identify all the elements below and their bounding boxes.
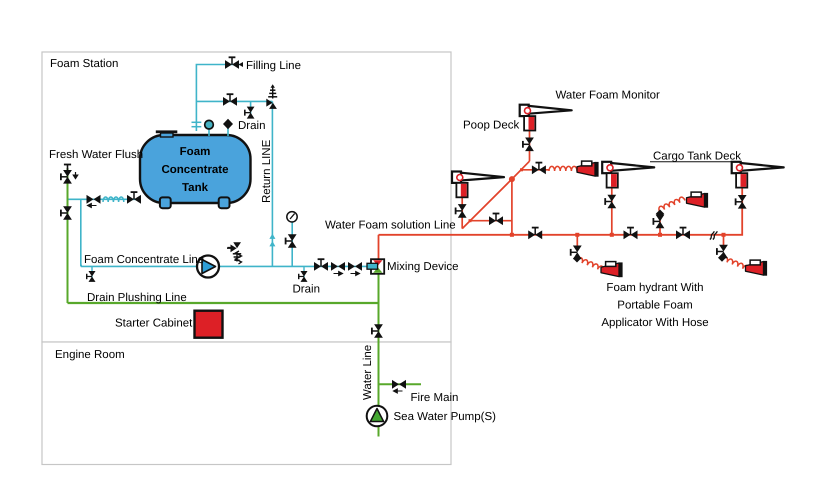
svg-text:Poop Deck: Poop Deck xyxy=(463,120,520,132)
svg-text:Cargo Tank Deck: Cargo Tank Deck xyxy=(653,151,741,163)
svg-text:Drain: Drain xyxy=(293,284,320,296)
svg-text:Water Foam Monitor: Water Foam Monitor xyxy=(556,90,661,102)
svg-text:Foam: Foam xyxy=(180,146,211,158)
svg-text:Foam Concentrate Line: Foam Concentrate Line xyxy=(84,254,204,266)
svg-text:Tank: Tank xyxy=(182,182,209,194)
svg-text:Sea Water Pump(S): Sea Water Pump(S) xyxy=(394,411,497,423)
svg-text:Applicator With Hose: Applicator With Hose xyxy=(601,317,708,329)
svg-text:Drain Plushing Line: Drain Plushing Line xyxy=(87,292,187,304)
svg-text:Portable Foam: Portable Foam xyxy=(617,300,692,312)
svg-text:Fresh Water Flush: Fresh Water Flush xyxy=(49,149,143,161)
svg-text:Concentrate: Concentrate xyxy=(161,164,228,176)
svg-text:Water Line: Water Line xyxy=(362,345,374,400)
svg-text:Drain: Drain xyxy=(238,120,265,132)
svg-text:Fire Main: Fire Main xyxy=(411,392,459,404)
svg-text:Water Foam solution Line: Water Foam solution Line xyxy=(325,220,456,232)
svg-text:Mixing Device: Mixing Device xyxy=(387,261,459,273)
svg-text:Starter Cabinet: Starter Cabinet xyxy=(115,318,193,330)
svg-text:Foam hydrant With: Foam hydrant With xyxy=(606,282,703,294)
svg-text:Filling Line: Filling Line xyxy=(246,60,301,72)
svg-text:Foam Station: Foam Station xyxy=(50,58,118,70)
svg-text:Return LINE: Return LINE xyxy=(261,139,273,203)
svg-text:Engine Room: Engine Room xyxy=(55,349,125,361)
